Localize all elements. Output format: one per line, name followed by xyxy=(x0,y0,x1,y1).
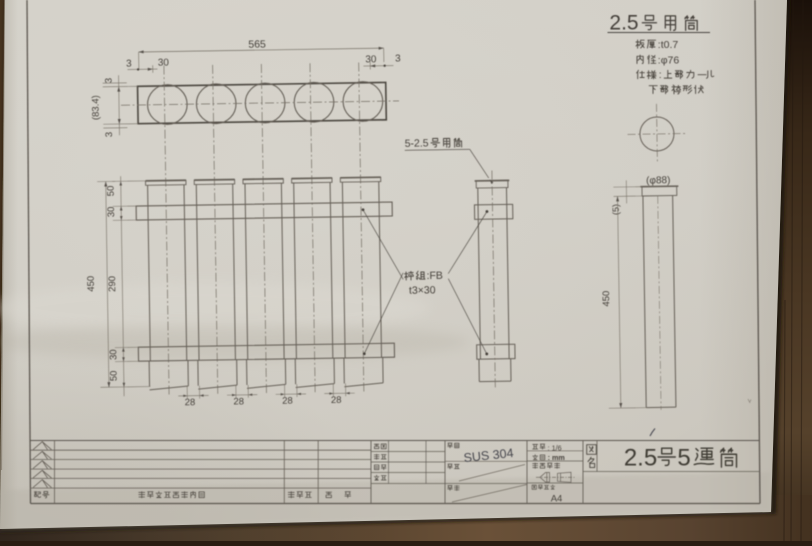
svg-text::φ76: :φ76 xyxy=(658,54,680,66)
svg-text:5: 5 xyxy=(677,445,690,472)
svg-text:: 1/6: : 1/6 xyxy=(548,444,562,453)
svg-text:30: 30 xyxy=(365,54,377,65)
svg-text:(5): (5) xyxy=(611,204,621,215)
svg-text::FB: :FB xyxy=(426,270,443,282)
svg-text::t0.7: :t0.7 xyxy=(658,39,679,51)
svg-text:2.5: 2.5 xyxy=(624,445,657,472)
svg-text:5-2.5: 5-2.5 xyxy=(405,137,429,149)
svg-text:(φ88): (φ88) xyxy=(646,175,670,186)
svg-text:50: 50 xyxy=(106,186,117,197)
svg-text:450: 450 xyxy=(86,276,97,292)
svg-text:50: 50 xyxy=(109,371,120,382)
svg-text:28: 28 xyxy=(331,395,342,406)
svg-text:450: 450 xyxy=(601,291,612,307)
svg-text:A4: A4 xyxy=(551,494,563,505)
svg-text:: mm: : mm xyxy=(548,453,565,462)
svg-text:2.5: 2.5 xyxy=(609,12,638,35)
svg-text:28: 28 xyxy=(282,396,293,407)
svg-text:30: 30 xyxy=(158,57,170,68)
svg-text:28: 28 xyxy=(185,397,196,408)
svg-text:3: 3 xyxy=(395,53,401,64)
svg-text:t3×30: t3×30 xyxy=(409,284,436,296)
svg-text:3: 3 xyxy=(104,132,115,137)
svg-text:30: 30 xyxy=(108,349,119,360)
svg-text:28: 28 xyxy=(233,396,244,407)
svg-text:290: 290 xyxy=(107,276,118,292)
svg-text::: : xyxy=(659,69,662,81)
svg-text:3: 3 xyxy=(104,78,115,83)
svg-text:3: 3 xyxy=(126,59,132,70)
svg-text:(83.4): (83.4) xyxy=(90,95,101,120)
svg-text:565: 565 xyxy=(248,38,266,50)
svg-text:30: 30 xyxy=(106,207,117,218)
